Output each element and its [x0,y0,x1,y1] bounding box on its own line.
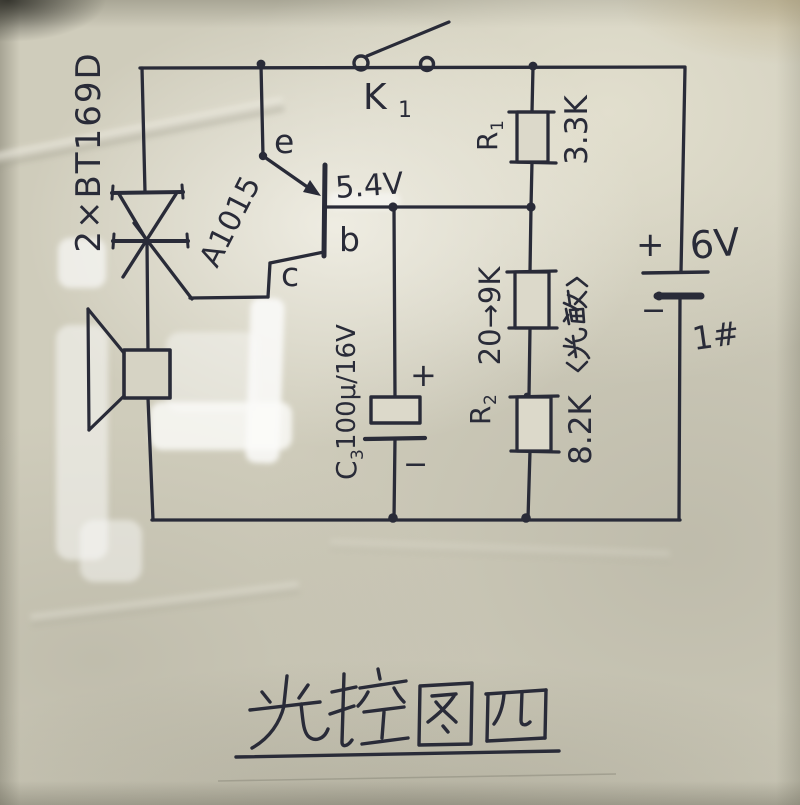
wire-c3-bottom [394,439,395,519]
wire-collector-vert [268,263,270,297]
switch-ref-sub: 1 [398,98,412,123]
transistor-part-label: A1015 [193,171,268,273]
switch-ref-label: K [363,77,388,118]
wire-battery-bottom [679,297,680,520]
wire-top-rail [140,67,685,68]
svg-text:光控图四: 光控图四 [244,677,508,754]
resistor-r1-symbol [509,112,556,163]
collector-label: c [281,255,299,294]
r1-value-label: 3.3K [559,95,595,165]
c3-label: C 3 100μ/16V [330,324,368,480]
wire-battery-top [681,68,685,272]
circuit-drawing: 2×BT169D A1015 e b c 5.4V K 1 R 1 3.3K R… [0,0,800,805]
wire-scr-gate-horiz [190,297,268,298]
svg-text:1: 1 [488,120,508,131]
base-label: b [339,220,360,259]
scr-symbol [112,185,188,277]
c3-plus-label: + [410,356,437,394]
emitter-label: e [274,122,294,161]
switch-symbol [354,22,449,71]
wire-scr-anode [142,68,145,192]
capacitor-c3-symbol [365,397,425,439]
r3-value-label: 8.2K [563,395,599,465]
r2-ref-label: R 2 [464,394,501,425]
faint-pencil-line [218,774,616,781]
resistor-8k2-symbol [510,396,559,452]
svg-text:C: C [330,460,363,480]
c3-minus-label: − [403,447,428,482]
photoresistor-symbol [507,271,557,328]
wire-r2-top [530,207,531,272]
svg-text:2: 2 [481,394,501,405]
base-voltage-label: 5.4V [334,166,405,206]
caption-title: 光控图四 [218,669,616,781]
svg-text:〈光敏〉: 〈光敏〉 [560,251,593,363]
r1-ref-label: R 1 [471,120,508,151]
svg-text:R: R [471,132,504,151]
wire-r1-top [532,67,533,112]
battery-voltage-label: 6V [688,220,742,268]
switch-lever [367,22,449,56]
battery-plus-label: + [636,225,665,265]
battery-minus-label: − [641,293,666,328]
wire-r2-bottom [528,451,530,519]
photoresistor-note: 〈光敏〉 [560,251,593,371]
svg-text:100μ/16V: 100μ/16V [332,324,362,450]
wire-r1-bottom [531,162,532,207]
svg-text:R: R [464,406,497,425]
transistor-symbol [259,152,325,256]
wire-scr-cathode [147,242,148,351]
wire-r2-mid [529,328,530,396]
battery-cell-id-label: 1# [690,314,742,358]
wire-emitter-drop [261,65,263,156]
r2-value-label: 20→9K [473,266,507,366]
photo-of-schematic: 2×BT169D A1015 e b c 5.4V K 1 R 1 3.3K R… [0,0,800,805]
emitter-arrow [303,180,321,196]
scr-part-label: 2×BT169D [69,51,109,252]
wire-c3-top [394,208,395,397]
